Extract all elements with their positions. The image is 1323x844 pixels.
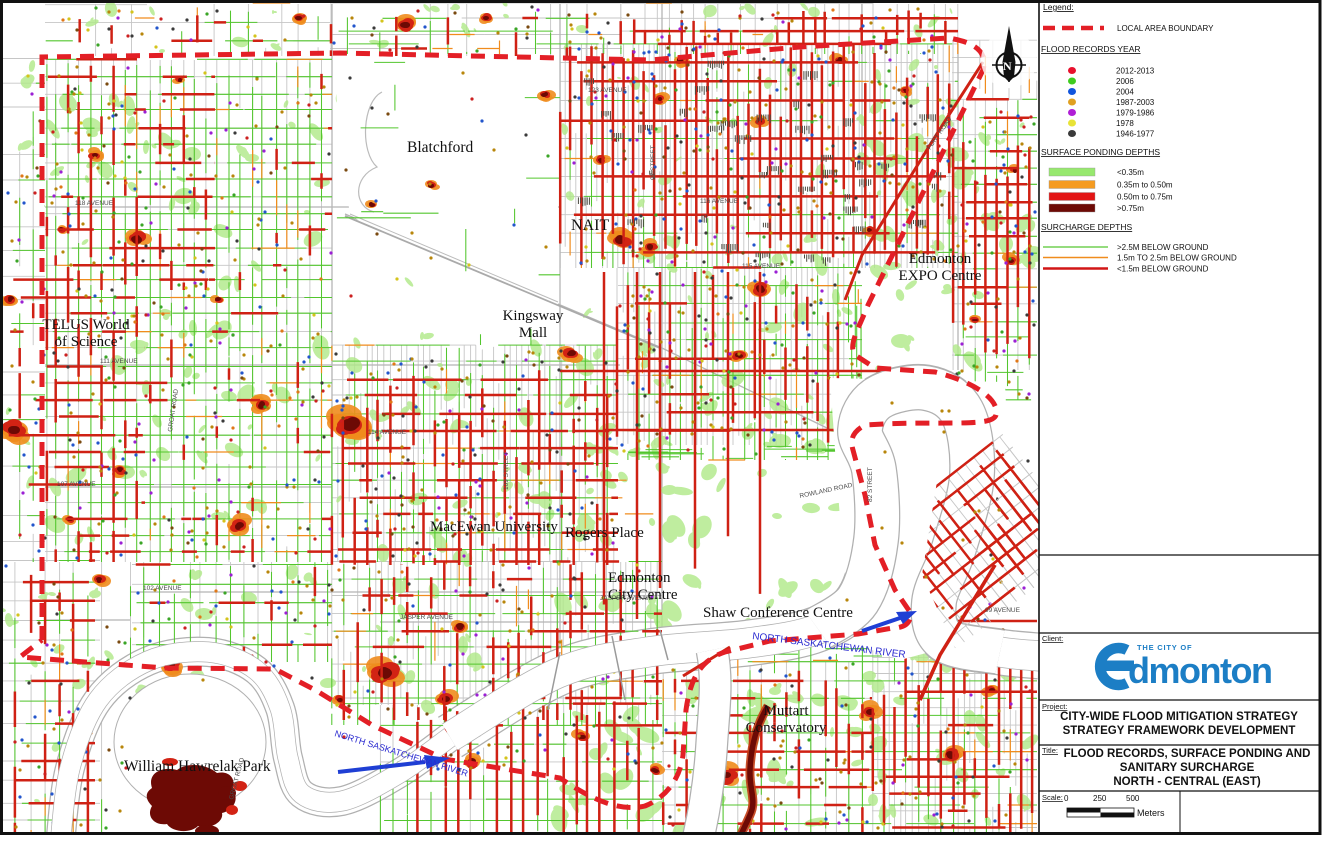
- svg-text:SURCHARGE DEPTHS: SURCHARGE DEPTHS: [1041, 222, 1132, 232]
- svg-text:Mall: Mall: [519, 325, 547, 341]
- svg-text:LOCAL AREA BOUNDARY: LOCAL AREA BOUNDARY: [1117, 24, 1214, 33]
- svg-text:107 AVENUE: 107 AVENUE: [57, 481, 96, 488]
- svg-text:TELUS World: TELUS World: [42, 317, 130, 333]
- svg-text:Muttart: Muttart: [764, 703, 810, 719]
- svg-text:99 AVENUE: 99 AVENUE: [985, 607, 1021, 614]
- svg-text:250: 250: [1093, 794, 1107, 803]
- svg-text:FLOOD RECORDS, SURFACE PONDING: FLOOD RECORDS, SURFACE PONDING AND: [1064, 748, 1311, 760]
- svg-text:97 STREET: 97 STREET: [650, 145, 657, 180]
- svg-text:JASPER AVENUE: JASPER AVENUE: [400, 614, 454, 621]
- svg-text:William Hawrelak Park: William Hawrelak Park: [124, 758, 271, 775]
- svg-text:111 AVENUE: 111 AVENUE: [100, 358, 138, 365]
- svg-text:Edmonton: Edmonton: [608, 570, 671, 586]
- svg-text:SURFACE PONDING DEPTHS: SURFACE PONDING DEPTHS: [1041, 147, 1160, 157]
- svg-text:1978: 1978: [1116, 119, 1134, 128]
- svg-text:SANITARY SURCHARGE: SANITARY SURCHARGE: [1120, 762, 1255, 774]
- svg-text:<0.35m: <0.35m: [1117, 168, 1144, 177]
- svg-text:EXPO Centre: EXPO Centre: [899, 268, 982, 284]
- svg-text:of Science: of Science: [55, 334, 118, 350]
- svg-text:114 AVENUE: 114 AVENUE: [368, 429, 407, 436]
- svg-text:82 STREET: 82 STREET: [867, 467, 874, 502]
- svg-text:109 STREET: 109 STREET: [503, 452, 510, 490]
- svg-text:1979-1986: 1979-1986: [1116, 109, 1155, 118]
- svg-text:Rogers Place: Rogers Place: [565, 525, 644, 541]
- svg-text:CITY-WIDE FLOOD MITIGATION STR: CITY-WIDE FLOOD MITIGATION STRATEGY: [1060, 711, 1298, 723]
- svg-text:123 AVENUE: 123 AVENUE: [588, 87, 627, 94]
- svg-text:115 AVENUE: 115 AVENUE: [742, 263, 781, 270]
- svg-text:116 AVENUE: 116 AVENUE: [700, 198, 739, 205]
- svg-text:118 AVENUE: 118 AVENUE: [75, 200, 114, 207]
- svg-text:500: 500: [1126, 794, 1140, 803]
- svg-text:2004: 2004: [1116, 88, 1134, 97]
- svg-text:Kingsway: Kingsway: [503, 308, 564, 324]
- svg-text:Title:: Title:: [1042, 746, 1058, 755]
- svg-text:0.35m to 0.50m: 0.35m to 0.50m: [1117, 181, 1173, 190]
- svg-text:0: 0: [1064, 794, 1069, 803]
- svg-text:1946-1977: 1946-1977: [1116, 130, 1155, 139]
- svg-text:<1.5m BELOW GROUND: <1.5m BELOW GROUND: [1117, 265, 1209, 274]
- svg-text:0.50m to 0.75m: 0.50m to 0.75m: [1117, 193, 1173, 202]
- svg-text:FLOOD RECORDS YEAR: FLOOD RECORDS YEAR: [1041, 44, 1141, 54]
- svg-text:Client:: Client:: [1042, 634, 1063, 643]
- svg-text:Shaw Conference Centre: Shaw Conference Centre: [703, 605, 853, 621]
- svg-text:N: N: [1003, 59, 1012, 73]
- svg-text:>2.5M BELOW GROUND: >2.5M BELOW GROUND: [1117, 243, 1209, 252]
- svg-text:2012-2013: 2012-2013: [1116, 67, 1155, 76]
- svg-text:Scale:: Scale:: [1042, 793, 1063, 802]
- svg-text:dmonton: dmonton: [1128, 650, 1271, 691]
- svg-text:Edmonton: Edmonton: [909, 251, 972, 267]
- svg-text:MacEwan University: MacEwan University: [430, 519, 558, 535]
- svg-text:STRATEGY FRAMEWORK DEVELOPMENT: STRATEGY FRAMEWORK DEVELOPMENT: [1063, 725, 1296, 737]
- svg-text:>0.75m: >0.75m: [1117, 204, 1144, 213]
- svg-text:102 AVENUE: 102 AVENUE: [143, 585, 182, 592]
- svg-text:1.5m TO 2.5m BELOW GROUND: 1.5m TO 2.5m BELOW GROUND: [1117, 254, 1237, 263]
- svg-text:Blatchford: Blatchford: [407, 139, 474, 156]
- svg-text:NAIT: NAIT: [571, 217, 609, 234]
- svg-text:City Centre: City Centre: [608, 587, 678, 603]
- svg-text:Legend:: Legend:: [1043, 2, 1074, 12]
- svg-text:Project:: Project:: [1042, 702, 1067, 711]
- svg-text:NORTH - CENTRAL (EAST): NORTH - CENTRAL (EAST): [1113, 776, 1261, 788]
- svg-text:Conservatory: Conservatory: [746, 720, 827, 736]
- svg-text:1987-2003: 1987-2003: [1116, 98, 1155, 107]
- svg-text:2006: 2006: [1116, 77, 1134, 86]
- svg-text:Meters: Meters: [1137, 808, 1165, 818]
